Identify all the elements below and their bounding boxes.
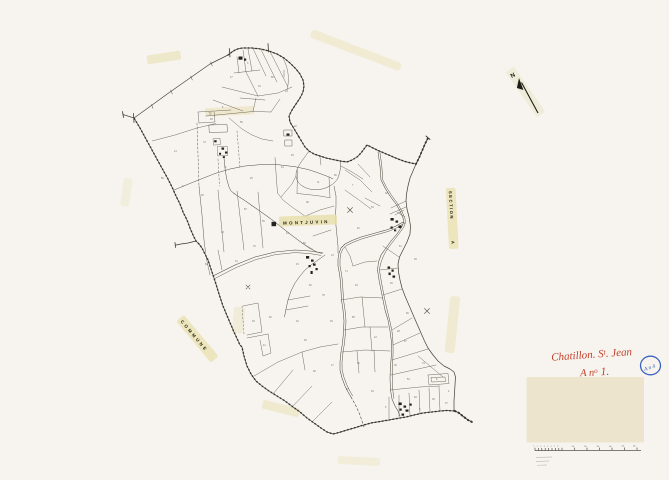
svg-text:4: 4 (544, 446, 545, 448)
svg-text:600: 600 (633, 446, 636, 448)
svg-text:100: 100 (572, 446, 575, 448)
svg-text:500: 500 (622, 446, 625, 448)
svg-text:400: 400 (609, 446, 612, 448)
svg-text:300: 300 (597, 446, 600, 448)
svg-text:200: 200 (584, 446, 587, 448)
svg-text:8: 8 (557, 446, 558, 448)
svg-text:6: 6 (551, 446, 552, 448)
svg-text:2: 2 (537, 446, 538, 448)
svg-text:5: 5 (547, 446, 548, 448)
svg-text:1: 1 (534, 446, 535, 448)
svg-text:A no 1.: A no 1. (579, 366, 610, 380)
svg-text:A: A (450, 241, 455, 244)
svg-text:7: 7 (554, 446, 555, 448)
svg-text:3: 3 (540, 446, 541, 448)
